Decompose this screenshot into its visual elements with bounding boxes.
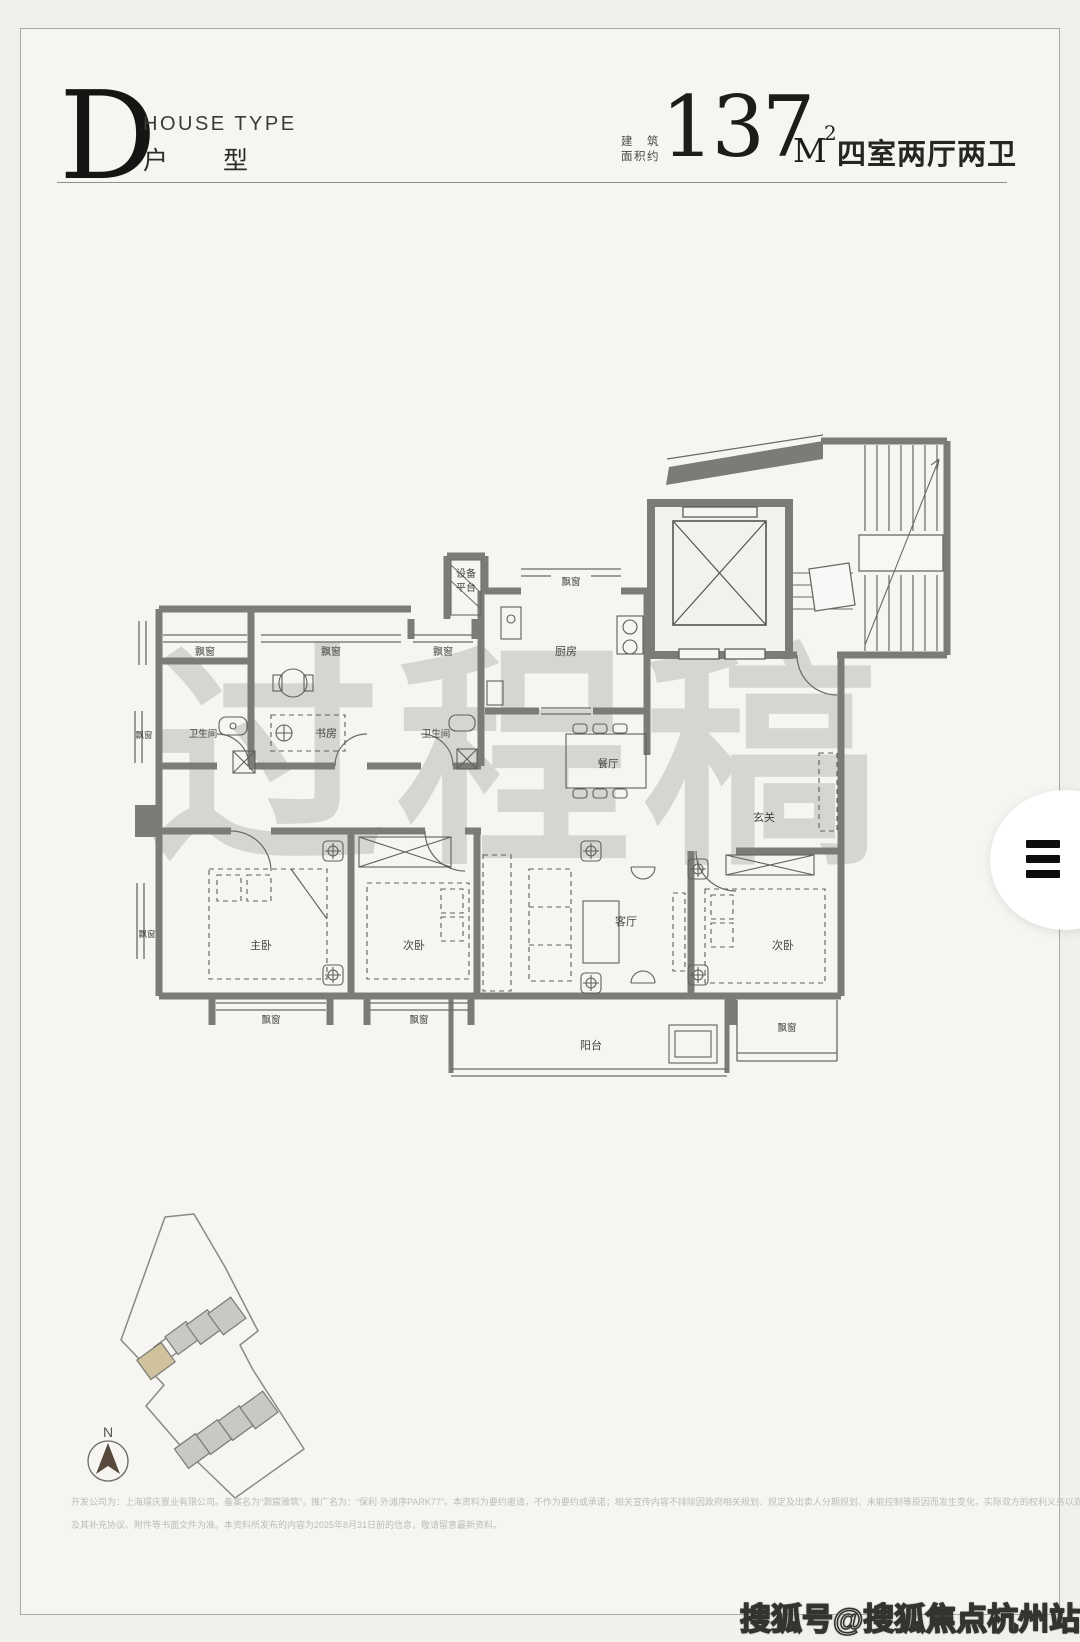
label-bay-bath2: 飘窗 bbox=[433, 645, 453, 658]
disclaimer-line1: 开发公司为：上海璟庆置业有限公司。备案名为“灏宸雅筑”，推广名为：“保利·外滩序… bbox=[71, 1491, 1021, 1514]
site-buildings bbox=[137, 1297, 278, 1468]
elevator bbox=[651, 503, 789, 659]
label-kitchen: 厨房 bbox=[555, 645, 577, 658]
area-value: 137 bbox=[661, 85, 812, 169]
hamburger-bar bbox=[1026, 870, 1060, 878]
label-equipment-1: 设备 bbox=[456, 567, 476, 580]
site-plan: N bbox=[61, 1181, 361, 1501]
label-balcony: 阳台 bbox=[580, 1038, 602, 1052]
label-bay-kitchen: 飘窗 bbox=[561, 576, 580, 588]
label-bath-2: 卫生间 bbox=[422, 728, 451, 740]
page-background: D HOUSE TYPE 户型 建 筑 面积约 137 M 2 四室两厅两卫 过… bbox=[0, 0, 1080, 1642]
room-spec: 四室两厅两卫 bbox=[837, 131, 1017, 173]
hamburger-bar bbox=[1026, 855, 1060, 863]
doors bbox=[217, 655, 837, 891]
disclaimer-line2: 及其补充协议、附件等书面文件为准。本资料所发布的内容为2025年8月31日前的信… bbox=[71, 1514, 1021, 1537]
label-dining: 餐厅 bbox=[598, 757, 619, 770]
area-prefix: 建 筑 面积约 bbox=[621, 135, 660, 165]
house-type-letter: D bbox=[59, 75, 157, 197]
area-unit-sup: 2 bbox=[824, 121, 837, 145]
label-bedroom2: 次卧 bbox=[403, 938, 425, 952]
label-bay-bottom-2: 飘窗 bbox=[409, 1014, 428, 1026]
hamburger-bar bbox=[1026, 840, 1060, 848]
label-equipment-2: 平台 bbox=[456, 581, 476, 594]
label-bay-left-2: 飘窗 bbox=[138, 929, 155, 939]
house-type-cn: 户型 bbox=[143, 141, 303, 177]
area-unit: M bbox=[793, 131, 827, 170]
disclaimer: 开发公司为：上海璟庆置业有限公司。备案名为“灏宸雅筑”，推广名为：“保利·外滩序… bbox=[71, 1491, 1021, 1537]
header-divider bbox=[57, 182, 1007, 183]
area-prefix-line2: 面积约 bbox=[621, 150, 660, 165]
common-core bbox=[651, 435, 947, 659]
sohu-watermark: 搜狐号@搜狐焦点杭州站 bbox=[740, 1594, 1080, 1639]
content-card: D HOUSE TYPE 户型 建 筑 面积约 137 M 2 四室两厅两卫 过… bbox=[20, 28, 1060, 1615]
label-bedroom3: 次卧 bbox=[772, 938, 794, 952]
label-bay-bottom-1: 飘窗 bbox=[261, 1014, 280, 1026]
label-bay-topleft: 飘窗 bbox=[195, 645, 215, 658]
label-living: 客厅 bbox=[615, 914, 637, 928]
label-bay-left-1: 飘窗 bbox=[135, 730, 152, 740]
label-bath-1: 卫生间 bbox=[189, 728, 218, 740]
floor-plan: 设备 平台 飘窗 飘窗 飘窗 飘窗 飘窗 飘窗 飘窗 飘窗 飘窗 卫生间 卫生间… bbox=[111, 413, 971, 1133]
house-type-en: HOUSE TYPE bbox=[143, 113, 297, 136]
label-study: 书房 bbox=[315, 727, 337, 740]
label-foyer: 玄关 bbox=[753, 810, 775, 824]
label-master: 主卧 bbox=[250, 939, 272, 952]
north-label: N bbox=[103, 1424, 113, 1440]
label-bay-study: 飘窗 bbox=[321, 645, 341, 658]
hamburger-icon[interactable] bbox=[1026, 840, 1060, 885]
floor-plan-area: 过程稿 bbox=[111, 413, 971, 1133]
area-prefix-line1: 建 筑 bbox=[621, 135, 660, 150]
north-arrow: N bbox=[88, 1424, 128, 1481]
vent-icons bbox=[323, 841, 708, 993]
label-bay-bottom-3: 飘窗 bbox=[777, 1022, 796, 1034]
